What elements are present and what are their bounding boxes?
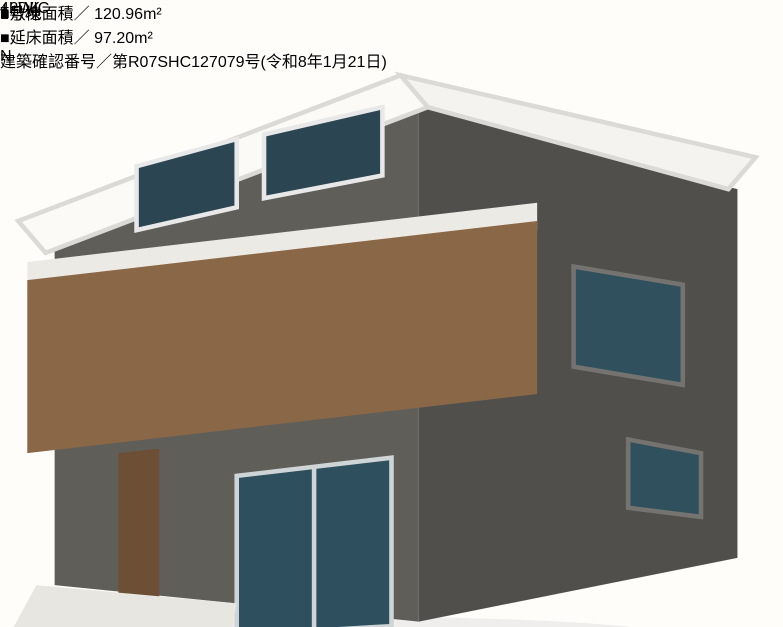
flyer-canvas: 1号棟 4LDK +2WIC ■敷地面積／ 120.96m² ■延床面積／ 97… bbox=[0, 0, 783, 627]
compass-north-label: N bbox=[0, 48, 12, 66]
house-exterior-image bbox=[0, 48, 783, 627]
floor-area-row: ■延床面積／ 97.20m² bbox=[0, 24, 783, 48]
site-area-value: 120.96m² bbox=[94, 6, 162, 23]
title-subtitle: +2WIC bbox=[0, 0, 49, 18]
floor-area-value: 97.20m² bbox=[94, 30, 153, 47]
site-area-row: ■敷地面積／ 120.96m² bbox=[0, 0, 783, 24]
floor-area-label: ■延床面積／ bbox=[0, 30, 90, 47]
